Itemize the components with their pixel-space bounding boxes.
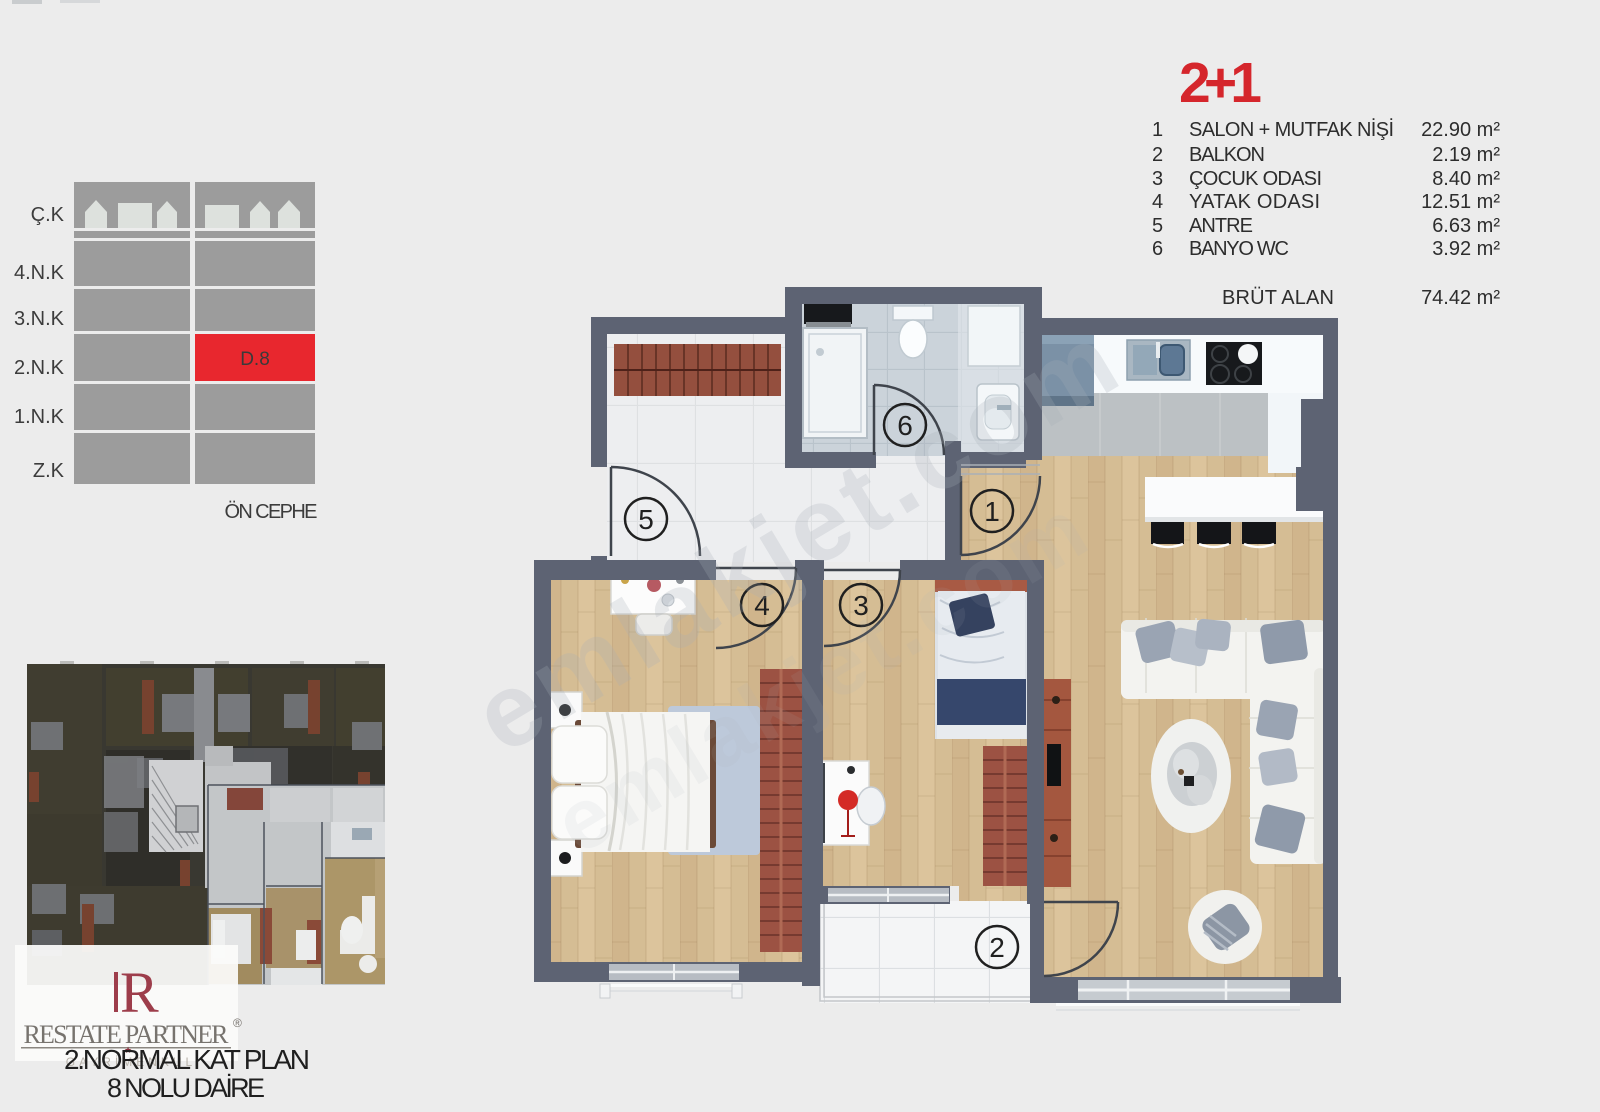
svg-text:12.51 m²: 12.51 m²: [1421, 191, 1500, 213]
svg-text:3.N.K: 3.N.K: [14, 308, 65, 330]
svg-text:8.40 m²: 8.40 m²: [1432, 168, 1500, 190]
svg-text:SALON + MUTFAK NİŞİ: SALON + MUTFAK NİŞİ: [1189, 118, 1394, 141]
svg-text:BANYO WC: BANYO WC: [1189, 238, 1289, 260]
svg-text:2.N.K: 2.N.K: [14, 357, 65, 379]
svg-text:3.92 m²: 3.92 m²: [1432, 238, 1500, 260]
svg-text:Ç.K: Ç.K: [31, 204, 65, 226]
svg-text:3: 3: [1152, 168, 1163, 190]
svg-text:2.19 m²: 2.19 m²: [1432, 144, 1500, 166]
svg-text:22.90 m²: 22.90 m²: [1421, 119, 1500, 141]
svg-text:5: 5: [638, 504, 654, 535]
svg-text:4.N.K: 4.N.K: [14, 262, 65, 284]
svg-text:Z.K: Z.K: [33, 460, 65, 482]
svg-text:6.63 m²: 6.63 m²: [1432, 215, 1500, 237]
svg-text:BRÜT ALAN: BRÜT ALAN: [1222, 287, 1334, 309]
svg-text:4: 4: [1152, 191, 1163, 213]
svg-text:2.NORMAL KAT PLAN: 2.NORMAL KAT PLAN: [64, 1044, 310, 1075]
svg-text:1: 1: [1152, 119, 1163, 141]
svg-text:®: ®: [233, 1016, 242, 1030]
svg-text:2: 2: [1152, 144, 1163, 166]
svg-text:YATAK ODASI: YATAK ODASI: [1189, 191, 1320, 213]
svg-text:74.42 m²: 74.42 m²: [1421, 287, 1500, 309]
svg-text:1.N.K: 1.N.K: [14, 406, 65, 428]
svg-text:2+1: 2+1: [1179, 51, 1261, 115]
svg-text:6: 6: [1152, 238, 1163, 260]
svg-text:2: 2: [989, 932, 1005, 963]
svg-text:5: 5: [1152, 215, 1163, 237]
svg-text:D.8: D.8: [240, 349, 270, 370]
svg-text:8 NOLU DAİRE: 8 NOLU DAİRE: [107, 1072, 265, 1103]
svg-text:ANTRE: ANTRE: [1189, 215, 1253, 237]
svg-text:ÇOCUK ODASI: ÇOCUK ODASI: [1189, 168, 1322, 190]
svg-text:R: R: [120, 960, 159, 1025]
svg-text:ÖN CEPHE: ÖN CEPHE: [225, 501, 318, 523]
svg-text:BALKON: BALKON: [1189, 144, 1265, 166]
